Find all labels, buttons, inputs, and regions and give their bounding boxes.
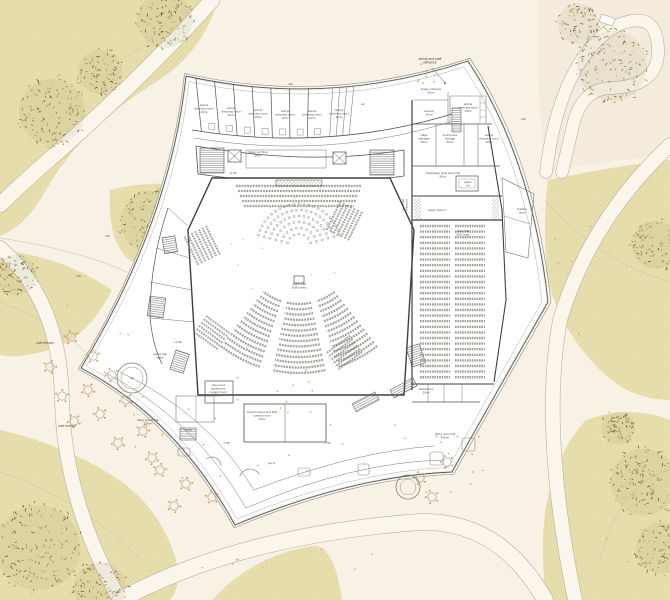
site-plan-drawing: artists and staffentrancecafe terracecaf…: [0, 0, 670, 600]
level-label: +1.50: [229, 171, 237, 175]
site-label: cafe terrace: [36, 341, 54, 345]
site-label: +30: [287, 82, 292, 86]
room-label: west hallentrance: [401, 199, 409, 211]
site-plan: artists and staffentrancecafe terracecaf…: [0, 0, 670, 600]
room-label: bar: [130, 376, 134, 380]
site-label: +30: [520, 117, 525, 121]
level-label: +4.00: [184, 428, 192, 432]
level-label: +1.50: [174, 340, 182, 344]
room-label: west hall500 seats: [456, 229, 470, 237]
site-label: +30: [75, 274, 80, 278]
room-label: wc: [361, 102, 365, 106]
site-label: cafe terrace: [58, 424, 76, 428]
level-label: +4.0: [269, 461, 275, 465]
room-label: grand hall1800 seats: [291, 282, 307, 290]
level-label: -7.50: [323, 441, 330, 445]
level-label: -7.50: [222, 441, 229, 445]
site-label: +35: [104, 234, 109, 238]
room-label: stage 120 m²: [428, 208, 446, 212]
